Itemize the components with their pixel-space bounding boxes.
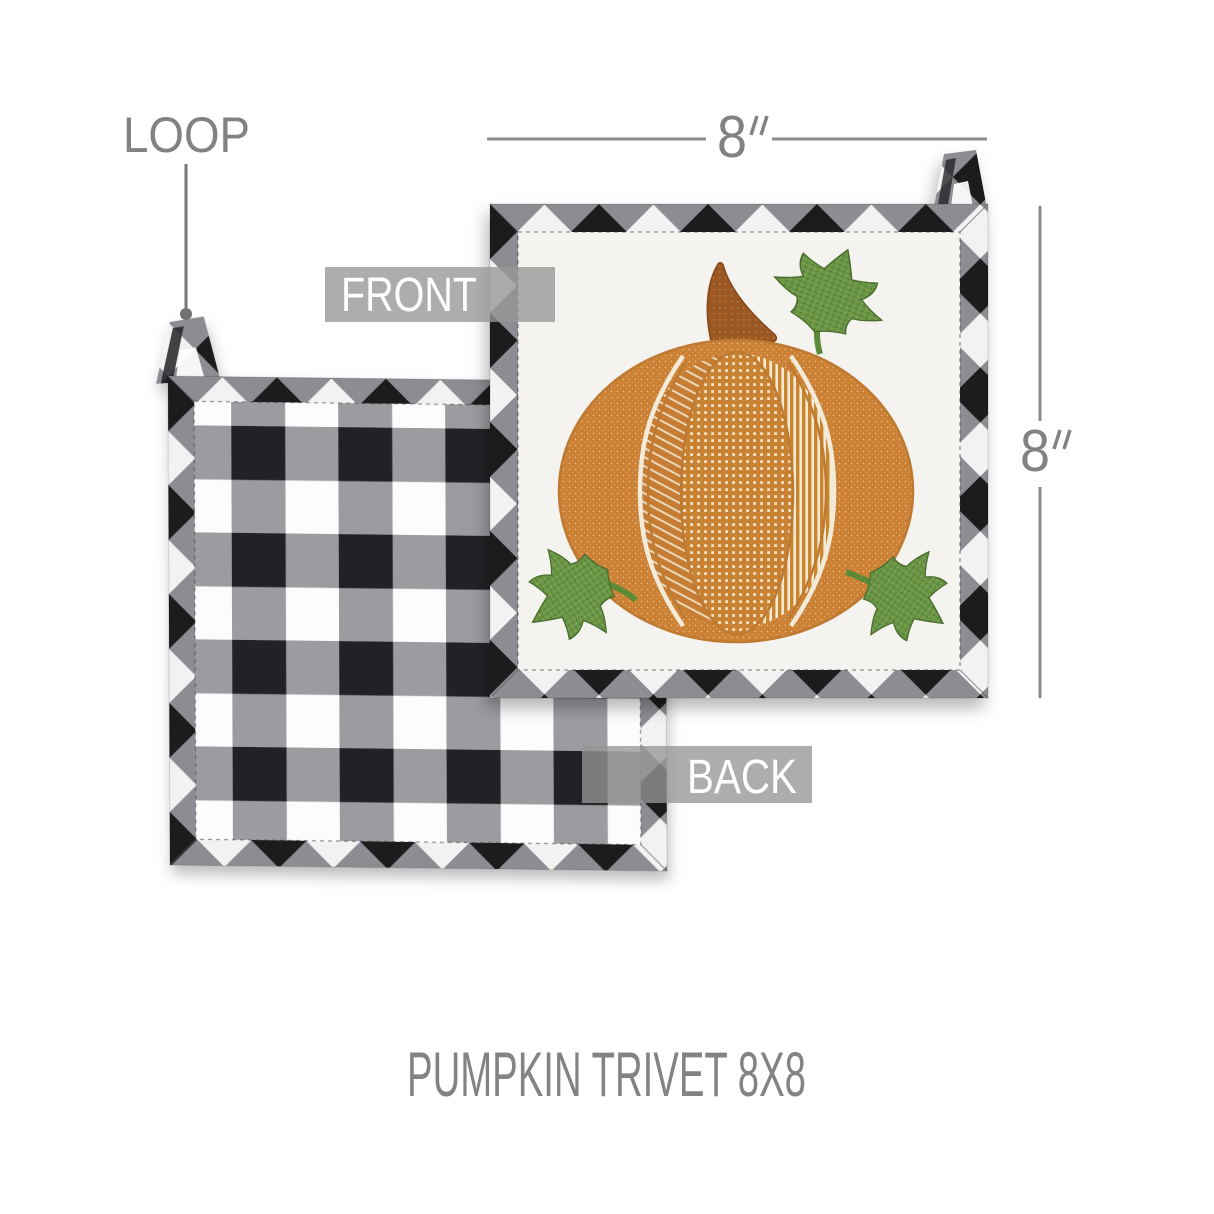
svg-text:8: 8 [1020, 418, 1050, 484]
svg-text:FRONT: FRONT [341, 269, 477, 322]
svg-text:PUMPKIN TRIVET 8X8: PUMPKIN TRIVET 8X8 [407, 1040, 806, 1110]
svg-text:LOOP: LOOP [123, 107, 250, 163]
svg-text:8: 8 [717, 104, 747, 170]
svg-text:BACK: BACK [687, 751, 797, 804]
